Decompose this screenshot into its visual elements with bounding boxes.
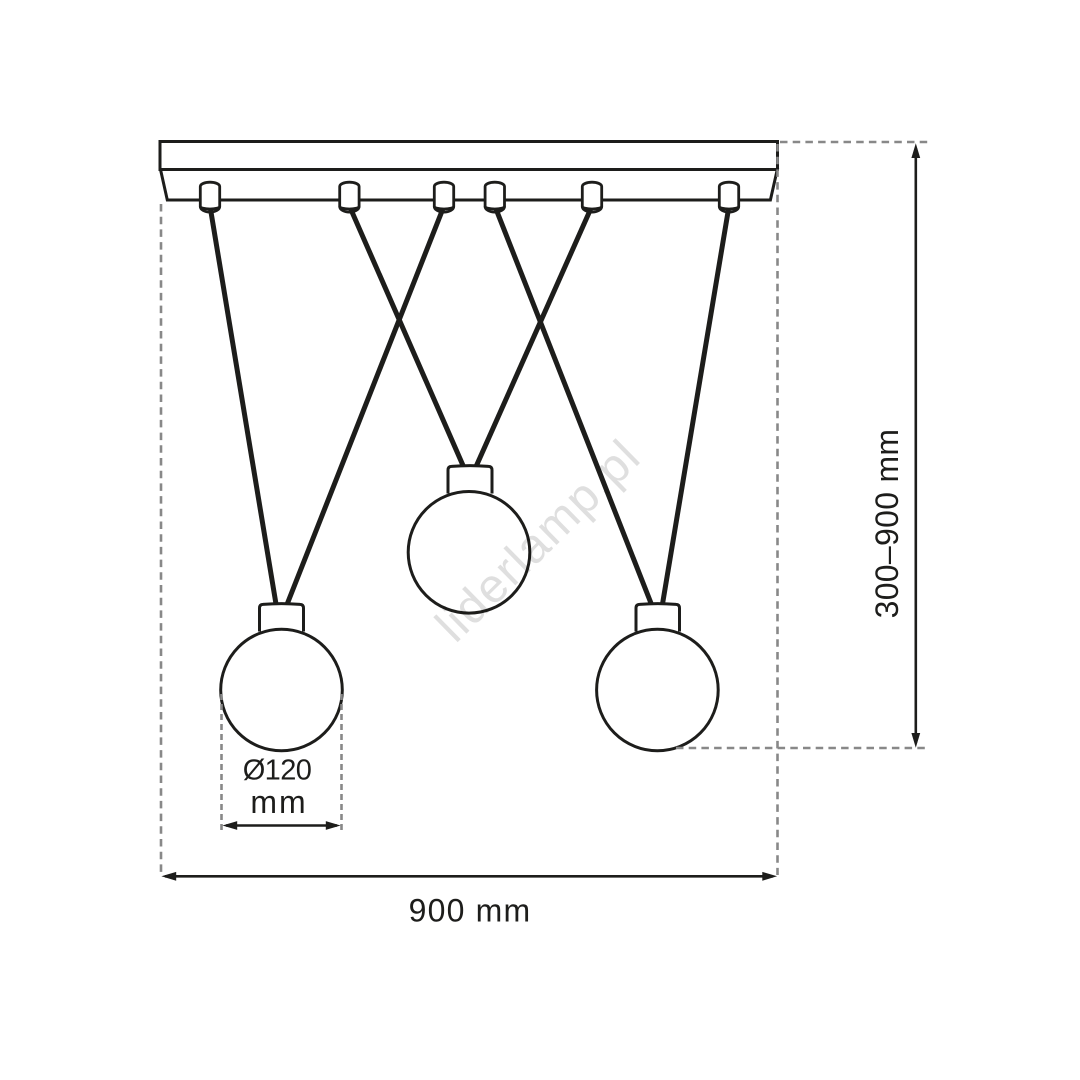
svg-text:900 mm: 900 mm <box>409 893 532 929</box>
svg-text:mm: mm <box>250 784 307 820</box>
svg-text:300–900 mm: 300–900 mm <box>869 429 905 619</box>
svg-text:Ø120: Ø120 <box>243 755 312 787</box>
